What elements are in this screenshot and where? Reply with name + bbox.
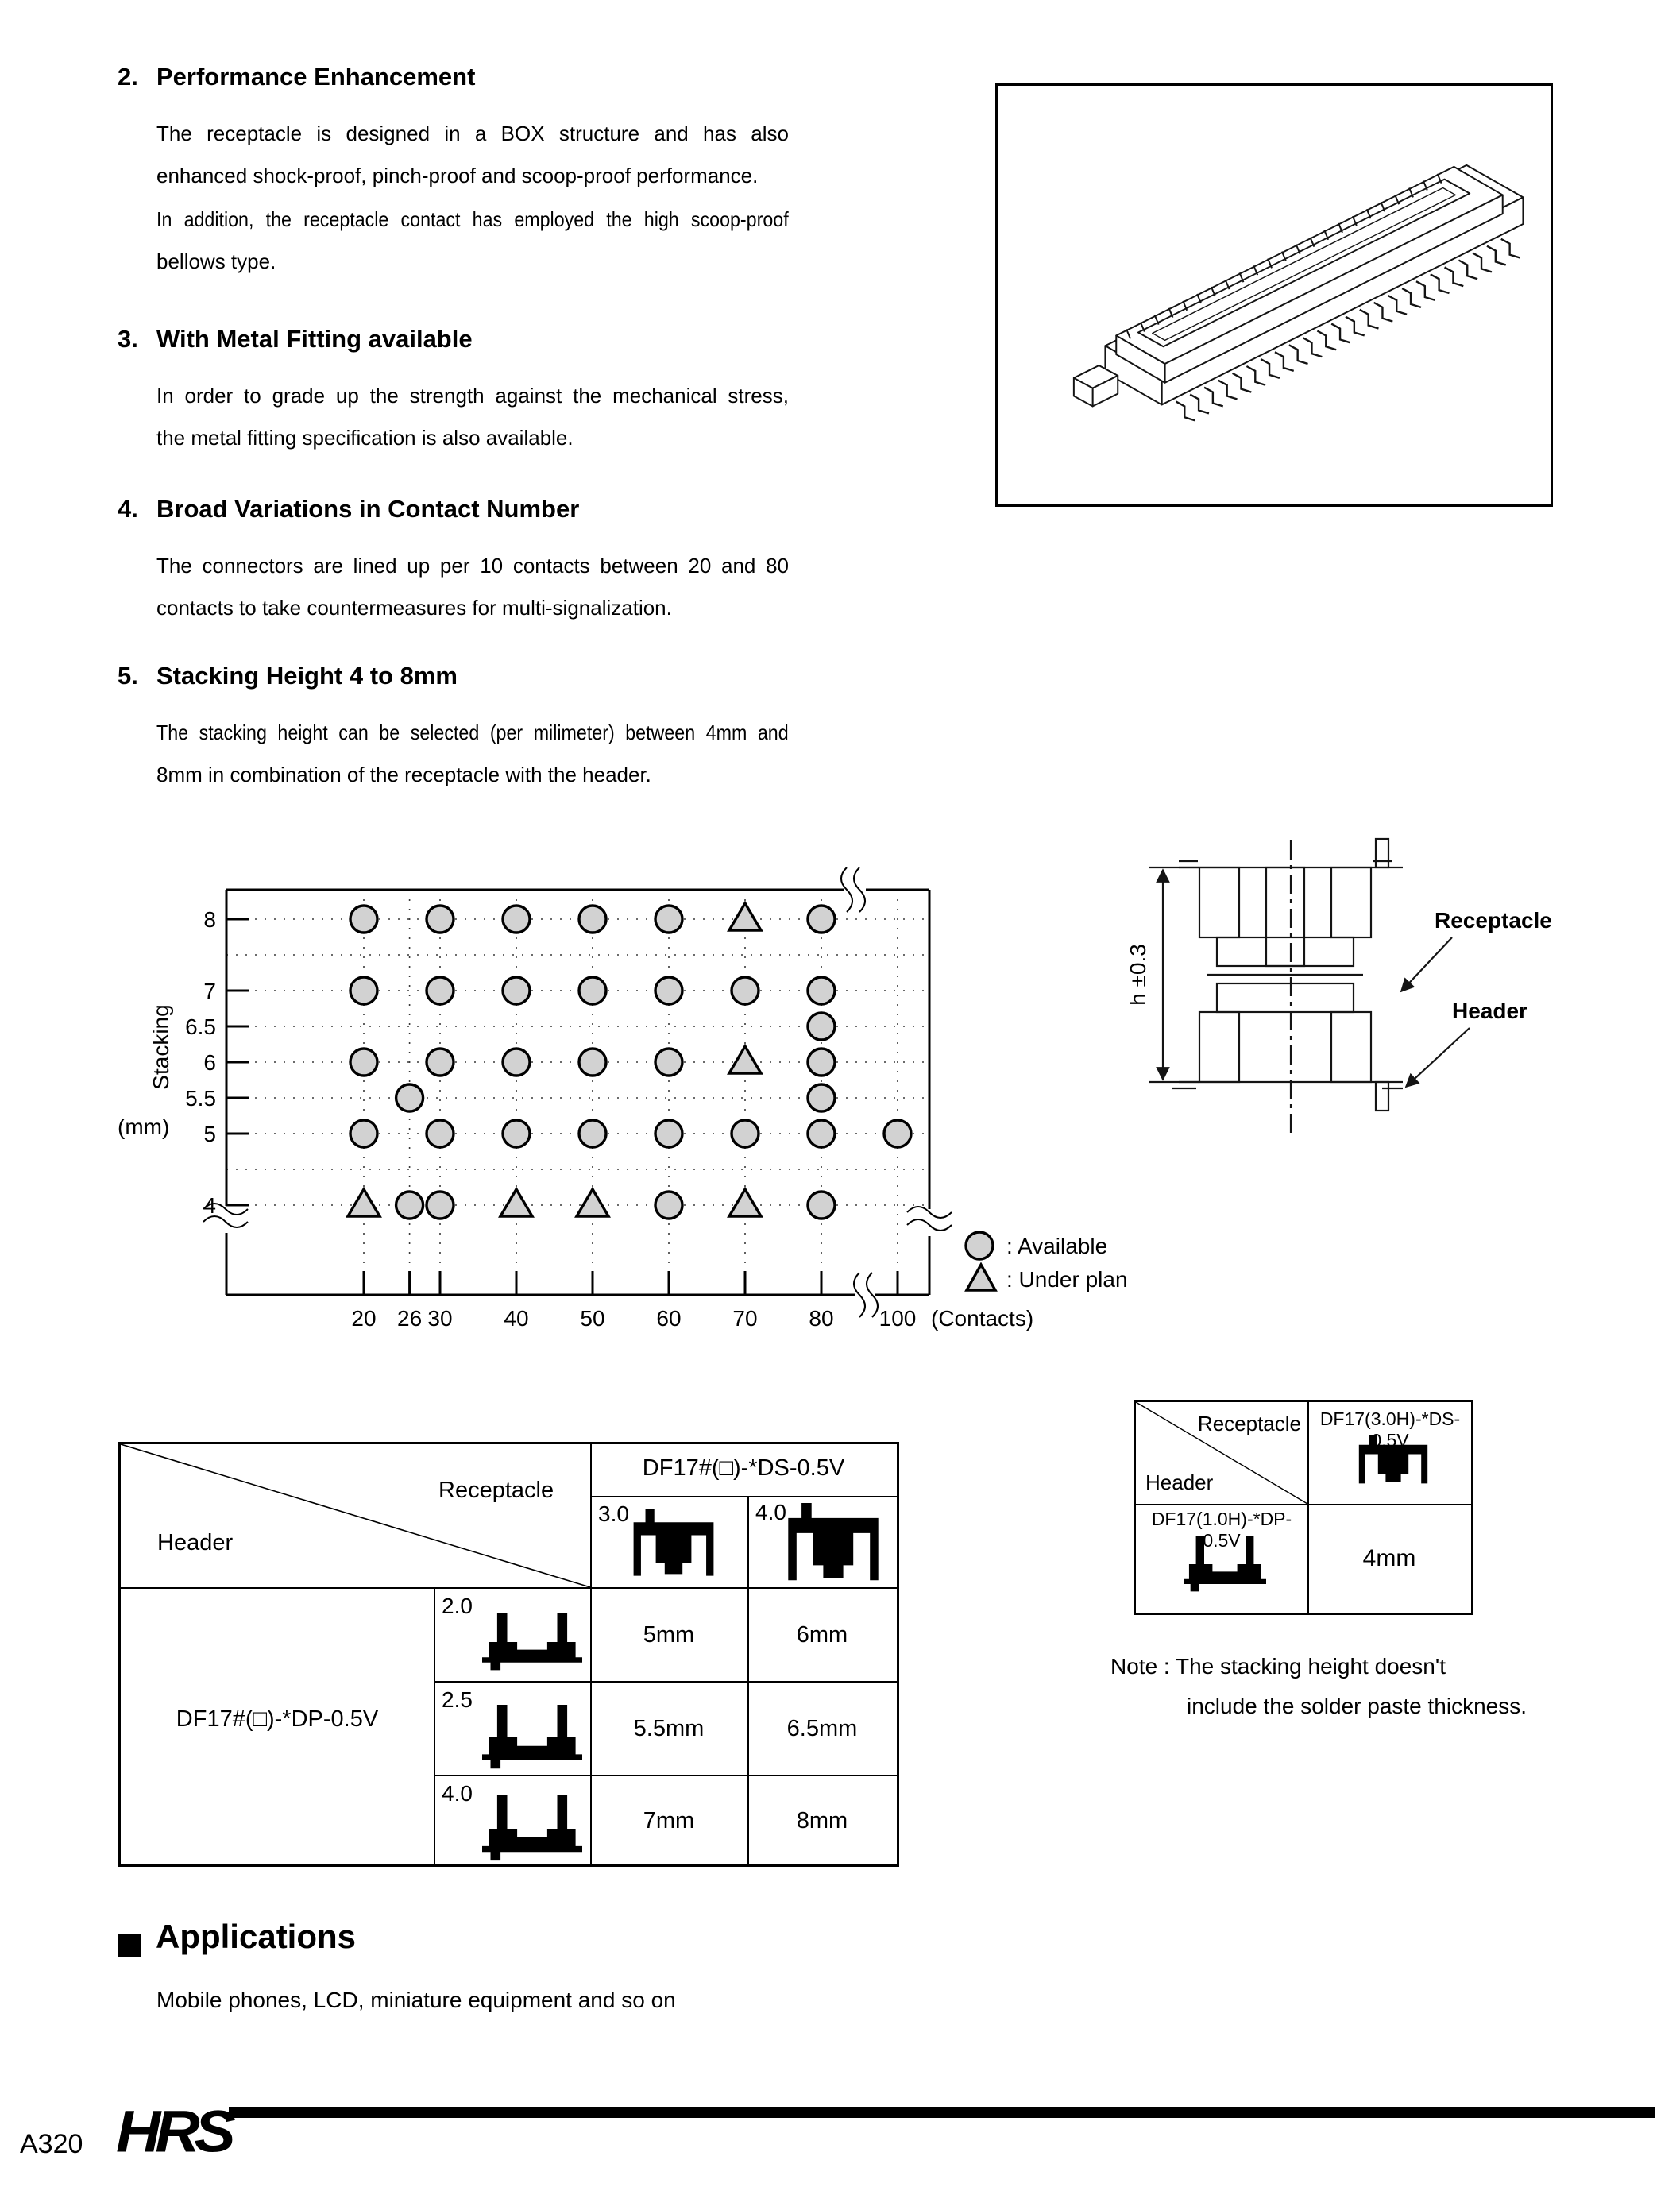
row-header-2.5: 2.5 <box>442 1687 473 1713</box>
text-line: enhanced shock-proof, pinch-proof and sc… <box>156 155 789 197</box>
receptacle-label: Receptacle <box>1435 908 1552 933</box>
header-icon <box>1184 1536 1266 1593</box>
header-2.0-icon <box>482 1613 582 1671</box>
available-marker <box>884 1120 911 1147</box>
svg-text:: Under plan: : Under plan <box>1006 1267 1128 1292</box>
value-cell: 6mm <box>747 1622 897 1648</box>
svg-text:4: 4 <box>203 1193 216 1218</box>
table-line <box>1307 1402 1309 1613</box>
hrs-logo: HRS <box>116 2097 230 2166</box>
svg-text:Stacking: Stacking <box>149 1004 173 1089</box>
receptacle-icon <box>1355 1435 1431 1485</box>
section-number: 3. <box>118 324 156 354</box>
chart-frame <box>203 867 952 1317</box>
available-marker <box>396 1084 423 1111</box>
svg-text:30: 30 <box>427 1306 452 1331</box>
svg-text:6: 6 <box>203 1050 216 1075</box>
available-marker <box>427 906 454 933</box>
chart-markers <box>348 903 911 1219</box>
under-plan-marker <box>348 1189 380 1216</box>
feature-section: 3.With Metal Fitting available In order … <box>118 324 801 459</box>
svg-text:(Contacts): (Contacts) <box>931 1306 1033 1331</box>
paragraph: The connectors are lined up per 10 conta… <box>156 545 789 629</box>
available-marker <box>655 906 682 933</box>
header-2.5-icon <box>482 1705 582 1770</box>
available-marker <box>350 1120 377 1147</box>
text-line: The connectors are lined up per 10 conta… <box>156 545 789 587</box>
paragraph: The receptacle is designed in a BOX stru… <box>156 113 789 197</box>
applications-body: Mobile phones, LCD, miniature equipment … <box>156 1988 676 2013</box>
section-heading: 3.With Metal Fitting available <box>118 324 801 354</box>
under-plan-marker <box>729 903 761 930</box>
section-number: 5. <box>118 661 156 691</box>
note-line-1: Note : The stacking height doesn't <box>1110 1654 1446 1679</box>
svg-text:(mm): (mm) <box>118 1115 169 1139</box>
section-body: The stacking height can be selected (per… <box>156 712 789 796</box>
svg-text:5: 5 <box>203 1122 216 1146</box>
table-line <box>1136 1504 1471 1505</box>
col-header-4.0: 4.0 <box>755 1500 786 1525</box>
section-heading: 4.Broad Variations in Contact Number <box>118 494 801 524</box>
table-line <box>590 1444 592 1864</box>
feature-section: 5.Stacking Height 4 to 8mm The stacking … <box>118 661 801 796</box>
svg-text:80: 80 <box>809 1306 833 1331</box>
section-title: Broad Variations in Contact Number <box>156 495 579 523</box>
value-cell: 5.5mm <box>590 1716 747 1742</box>
available-marker <box>655 1120 682 1147</box>
legend-under-plan-icon <box>967 1265 995 1290</box>
text-line: contacts to take countermeasures for mul… <box>156 587 789 629</box>
connector-photo-frame <box>995 83 1553 507</box>
under-plan-marker <box>500 1189 532 1216</box>
table-line <box>434 1775 897 1776</box>
svg-text:60: 60 <box>656 1306 681 1331</box>
text-line: In order to grade up the strength agains… <box>156 375 789 417</box>
stacking-height-table: Receptacle Header DF17#(□)-*DS-0.5V 3.0 … <box>118 1442 899 1867</box>
available-marker <box>350 977 377 1004</box>
table-line <box>121 1587 897 1589</box>
table-line <box>434 1681 897 1683</box>
section-body: In order to grade up the strength agains… <box>156 375 789 459</box>
svg-text:40: 40 <box>504 1306 528 1331</box>
header-4.0-icon <box>482 1795 582 1862</box>
chart-legend: : Available: Under plan <box>966 1232 1128 1292</box>
available-marker <box>579 977 606 1004</box>
available-marker <box>350 906 377 933</box>
section-heading: 2.Performance Enhancement <box>118 62 801 92</box>
text-line: The stacking height can be selected (per… <box>156 712 789 754</box>
under-plan-marker <box>577 1189 608 1216</box>
available-marker <box>396 1192 423 1219</box>
value-cell: 7mm <box>590 1808 747 1834</box>
footer-rule <box>229 2107 1655 2118</box>
available-marker <box>808 977 835 1004</box>
value-cell: 4mm <box>1307 1545 1471 1572</box>
available-marker <box>808 1120 835 1147</box>
available-marker <box>503 906 530 933</box>
available-marker <box>503 1049 530 1076</box>
col-header-3.0: 3.0 <box>598 1501 629 1527</box>
available-marker <box>655 1192 682 1219</box>
available-marker <box>427 977 454 1004</box>
text-line: bellows type. <box>156 241 789 283</box>
header-section <box>1172 983 1403 1111</box>
section-bullet-square <box>118 1934 141 1957</box>
svg-text:26: 26 <box>397 1306 422 1331</box>
datasheet-page: 2.Performance Enhancement The receptacle… <box>0 0 1680 2187</box>
page-number: A320 <box>20 2129 83 2160</box>
text-line: the metal fitting specification is also … <box>156 417 789 459</box>
available-marker <box>427 1120 454 1147</box>
section-body: The receptacle is designed in a BOX stru… <box>156 113 789 283</box>
corner-receptacle-label: Receptacle <box>1168 1412 1301 1436</box>
height-dimension <box>1149 867 1199 1082</box>
available-marker <box>503 1120 530 1147</box>
available-marker <box>808 1192 835 1219</box>
available-marker <box>655 977 682 1004</box>
svg-text:100: 100 <box>879 1306 917 1331</box>
svg-text:: Available: : Available <box>1006 1234 1107 1258</box>
stack-cross-section-diagram: h ±0.3 Receptacle Header <box>1096 826 1605 1144</box>
section-heading: 5.Stacking Height 4 to 8mm <box>118 661 801 691</box>
feature-section: 4.Broad Variations in Contact Number The… <box>118 494 801 629</box>
corner-header-label: Header <box>1145 1470 1213 1495</box>
feature-section: 2.Performance Enhancement The receptacle… <box>118 62 801 283</box>
svg-text:5.5: 5.5 <box>185 1086 216 1111</box>
applications-title: Applications <box>156 1918 356 1956</box>
paragraph: In addition, the receptacle contact has … <box>156 199 789 283</box>
svg-text:6.5: 6.5 <box>185 1014 216 1039</box>
note-line-2: include the solder paste thickness. <box>1187 1694 1527 1719</box>
legend-available-icon <box>966 1232 993 1259</box>
receptacle-3.0-icon <box>629 1509 718 1578</box>
available-marker <box>427 1192 454 1219</box>
text-line: 8mm in combination of the receptacle wit… <box>156 754 789 796</box>
row-header-4.0: 4.0 <box>442 1781 473 1806</box>
available-marker <box>732 1120 759 1147</box>
text-line: In addition, the receptacle contact has … <box>156 199 789 241</box>
header-part-number: DF17#(□)-*DP-0.5V <box>129 1706 426 1733</box>
stacking-height-chart: 2026304050607080100(Contacts)876.565.554… <box>79 842 1191 1382</box>
value-cell: 8mm <box>747 1808 897 1834</box>
text-line: The receptacle is designed in a BOX stru… <box>156 113 789 155</box>
under-plan-marker <box>729 1189 761 1216</box>
receptacle-4.0-icon <box>783 1503 883 1582</box>
svg-text:50: 50 <box>580 1306 604 1331</box>
row-header-2.0: 2.0 <box>442 1594 473 1619</box>
corner-header-label: Header <box>157 1530 233 1556</box>
available-marker <box>655 1049 682 1076</box>
4mm-combination-table: Receptacle Header DF17(3.0H)-*DS-0.5V DF… <box>1134 1400 1473 1615</box>
available-marker <box>808 1084 835 1111</box>
available-marker <box>808 1013 835 1040</box>
value-cell: 5mm <box>590 1622 747 1648</box>
available-marker <box>350 1049 377 1076</box>
receptacle-part-number: DF17#(□)-*DS-0.5V <box>590 1455 897 1482</box>
table-line <box>434 1587 435 1864</box>
header-label: Header <box>1452 999 1527 1023</box>
svg-text:7: 7 <box>203 979 216 1003</box>
section-title: Performance Enhancement <box>156 63 475 91</box>
available-marker <box>503 977 530 1004</box>
available-marker <box>579 1049 606 1076</box>
available-marker <box>427 1049 454 1076</box>
svg-text:20: 20 <box>351 1306 376 1331</box>
available-marker <box>579 906 606 933</box>
dimension-label: h ±0.3 <box>1126 944 1150 1006</box>
section-number: 2. <box>118 62 156 92</box>
table-line <box>590 1496 897 1497</box>
corner-receptacle-label: Receptacle <box>438 1478 554 1504</box>
available-marker <box>579 1120 606 1147</box>
paragraph: The stacking height can be selected (per… <box>156 712 789 796</box>
receptacle-leader-arrow <box>1401 937 1452 991</box>
paragraph: In order to grade up the strength agains… <box>156 375 789 459</box>
section-body: The connectors are lined up per 10 conta… <box>156 545 789 629</box>
under-plan-marker <box>729 1046 761 1073</box>
section-title: With Metal Fitting available <box>156 325 473 353</box>
svg-text:8: 8 <box>203 907 216 932</box>
svg-text:70: 70 <box>732 1306 757 1331</box>
section-number: 4. <box>118 494 156 524</box>
value-cell: 6.5mm <box>747 1716 897 1742</box>
available-marker <box>732 977 759 1004</box>
header-leader-arrow <box>1406 1028 1470 1087</box>
section-title: Stacking Height 4 to 8mm <box>156 662 458 690</box>
available-marker <box>808 906 835 933</box>
connector-isometric-drawing <box>998 86 1551 504</box>
available-marker <box>808 1049 835 1076</box>
